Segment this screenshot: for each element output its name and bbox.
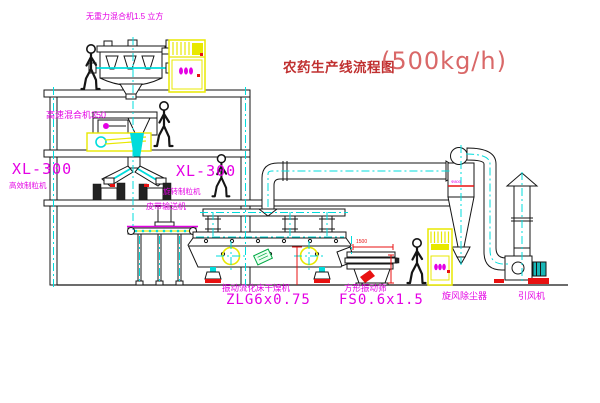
control-cabinet-right <box>428 229 452 285</box>
label-vibrating-sieve-model: FS0.6x1.5 <box>339 293 424 307</box>
label-cyclone: 旋风除尘器 <box>442 292 487 301</box>
person-figure <box>408 239 426 283</box>
dimension-cyclone-diameter: Φ800 <box>451 180 461 184</box>
label-fan: 引风机 <box>518 292 545 301</box>
label-granulator-right-model: XL-300 <box>176 164 236 179</box>
diagram-capacity: (500kg/h) <box>381 47 507 75</box>
label-granulator-left-name: 高效制粒机 <box>9 182 47 190</box>
dryer-leg <box>314 267 330 283</box>
granulator-left <box>93 178 125 200</box>
label-high-speed-mixer: 高速混合机350 <box>46 111 106 120</box>
fan-motor <box>533 262 546 276</box>
label-fluid-bed-dryer-model: ZLG6x0.75 <box>226 293 311 307</box>
label-granulator-left-model: XL-300 <box>12 162 72 177</box>
dryer-leg <box>205 267 221 283</box>
process-flow-diagram: 农药生产线流程图 (500kg/h) 无重力混合机1.5 立方 高速混合机350… <box>0 0 600 403</box>
label-gravityless-mixer: 无重力混合机1.5 立方 <box>86 13 163 21</box>
label-belt-conveyor: 皮带输送机 <box>146 203 186 211</box>
belt-conveyor <box>127 206 198 285</box>
control-cabinet-top <box>169 40 205 92</box>
diagram-title: 农药生产线流程图 <box>283 56 395 76</box>
dimension-sieve-width: 1500 <box>356 239 367 245</box>
label-granulator-right-name: 旋转制粒机 <box>163 188 201 196</box>
